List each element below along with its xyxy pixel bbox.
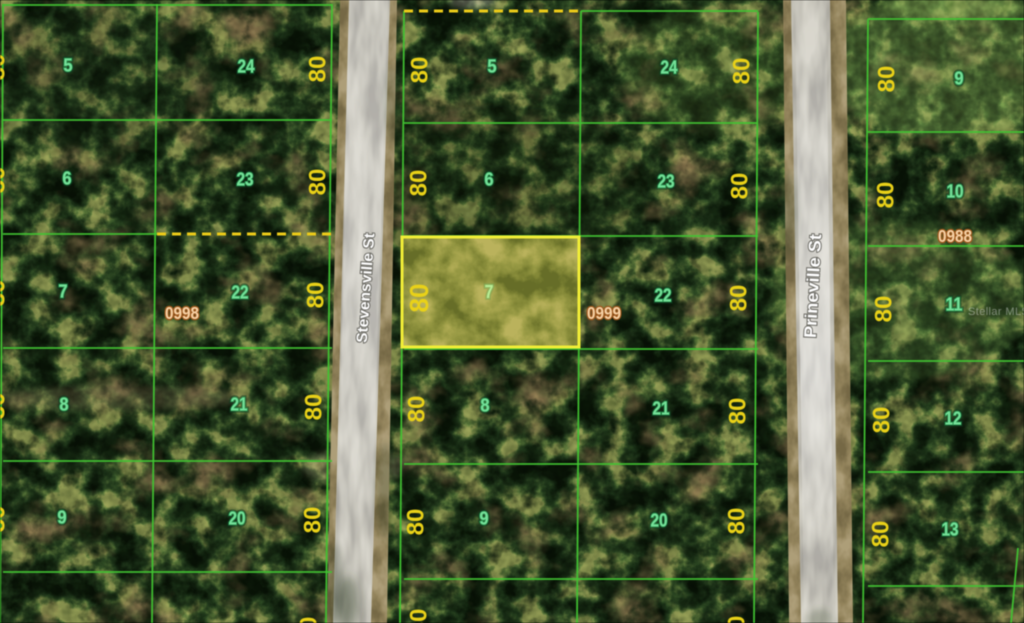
svg-text:80: 80 — [724, 616, 751, 623]
svg-text:20: 20 — [229, 508, 246, 529]
svg-text:80: 80 — [404, 284, 434, 313]
svg-text:80: 80 — [871, 296, 898, 323]
svg-text:80: 80 — [404, 396, 431, 423]
svg-text:80: 80 — [873, 182, 900, 209]
svg-text:21: 21 — [231, 394, 248, 415]
svg-text:24: 24 — [238, 56, 256, 77]
svg-text:21: 21 — [653, 398, 670, 419]
svg-text:80: 80 — [0, 167, 11, 194]
svg-text:80: 80 — [869, 407, 896, 434]
svg-text:6: 6 — [62, 168, 71, 189]
svg-text:80: 80 — [726, 285, 753, 312]
svg-text:10: 10 — [947, 181, 964, 202]
svg-text:9: 9 — [479, 508, 488, 529]
svg-text:0998: 0998 — [165, 303, 199, 323]
svg-text:80: 80 — [303, 282, 330, 309]
svg-text:7: 7 — [485, 282, 494, 302]
svg-text:20: 20 — [651, 510, 668, 531]
svg-text:5: 5 — [487, 56, 496, 77]
svg-text:5: 5 — [63, 55, 72, 76]
svg-text:8: 8 — [480, 395, 489, 416]
svg-text:80: 80 — [724, 508, 751, 535]
svg-text:80: 80 — [729, 58, 756, 85]
svg-text:9: 9 — [954, 68, 963, 89]
svg-text:11: 11 — [946, 294, 963, 315]
svg-text:23: 23 — [237, 169, 254, 190]
svg-text:80: 80 — [403, 509, 430, 536]
svg-text:7: 7 — [58, 281, 67, 302]
svg-text:80: 80 — [300, 507, 327, 534]
svg-text:80: 80 — [0, 280, 11, 307]
svg-text:80: 80 — [727, 173, 754, 200]
svg-text:0999: 0999 — [587, 303, 621, 323]
svg-text:80: 80 — [406, 609, 433, 623]
svg-text:80: 80 — [305, 169, 332, 196]
svg-text:13: 13 — [942, 519, 959, 540]
svg-text:80: 80 — [406, 170, 433, 197]
svg-text:80: 80 — [0, 506, 11, 533]
svg-text:22: 22 — [655, 285, 672, 306]
svg-text:6: 6 — [484, 169, 493, 190]
svg-text:80: 80 — [407, 57, 434, 84]
svg-text:12: 12 — [945, 408, 962, 429]
svg-text:Stellar MLS: Stellar MLS — [968, 306, 1024, 318]
svg-text:0988: 0988 — [938, 226, 972, 246]
svg-text:80: 80 — [0, 54, 11, 81]
svg-text:80: 80 — [725, 398, 752, 425]
svg-text:80: 80 — [0, 393, 11, 420]
svg-text:24: 24 — [661, 57, 679, 78]
svg-text:22: 22 — [232, 282, 249, 303]
svg-text:80: 80 — [874, 66, 901, 93]
svg-text:23: 23 — [658, 171, 675, 192]
svg-text:80: 80 — [296, 617, 323, 623]
svg-text:80: 80 — [305, 56, 332, 83]
svg-text:80: 80 — [301, 394, 328, 421]
svg-text:80: 80 — [868, 521, 895, 548]
svg-text:9: 9 — [57, 507, 66, 528]
svg-text:8: 8 — [59, 394, 68, 415]
